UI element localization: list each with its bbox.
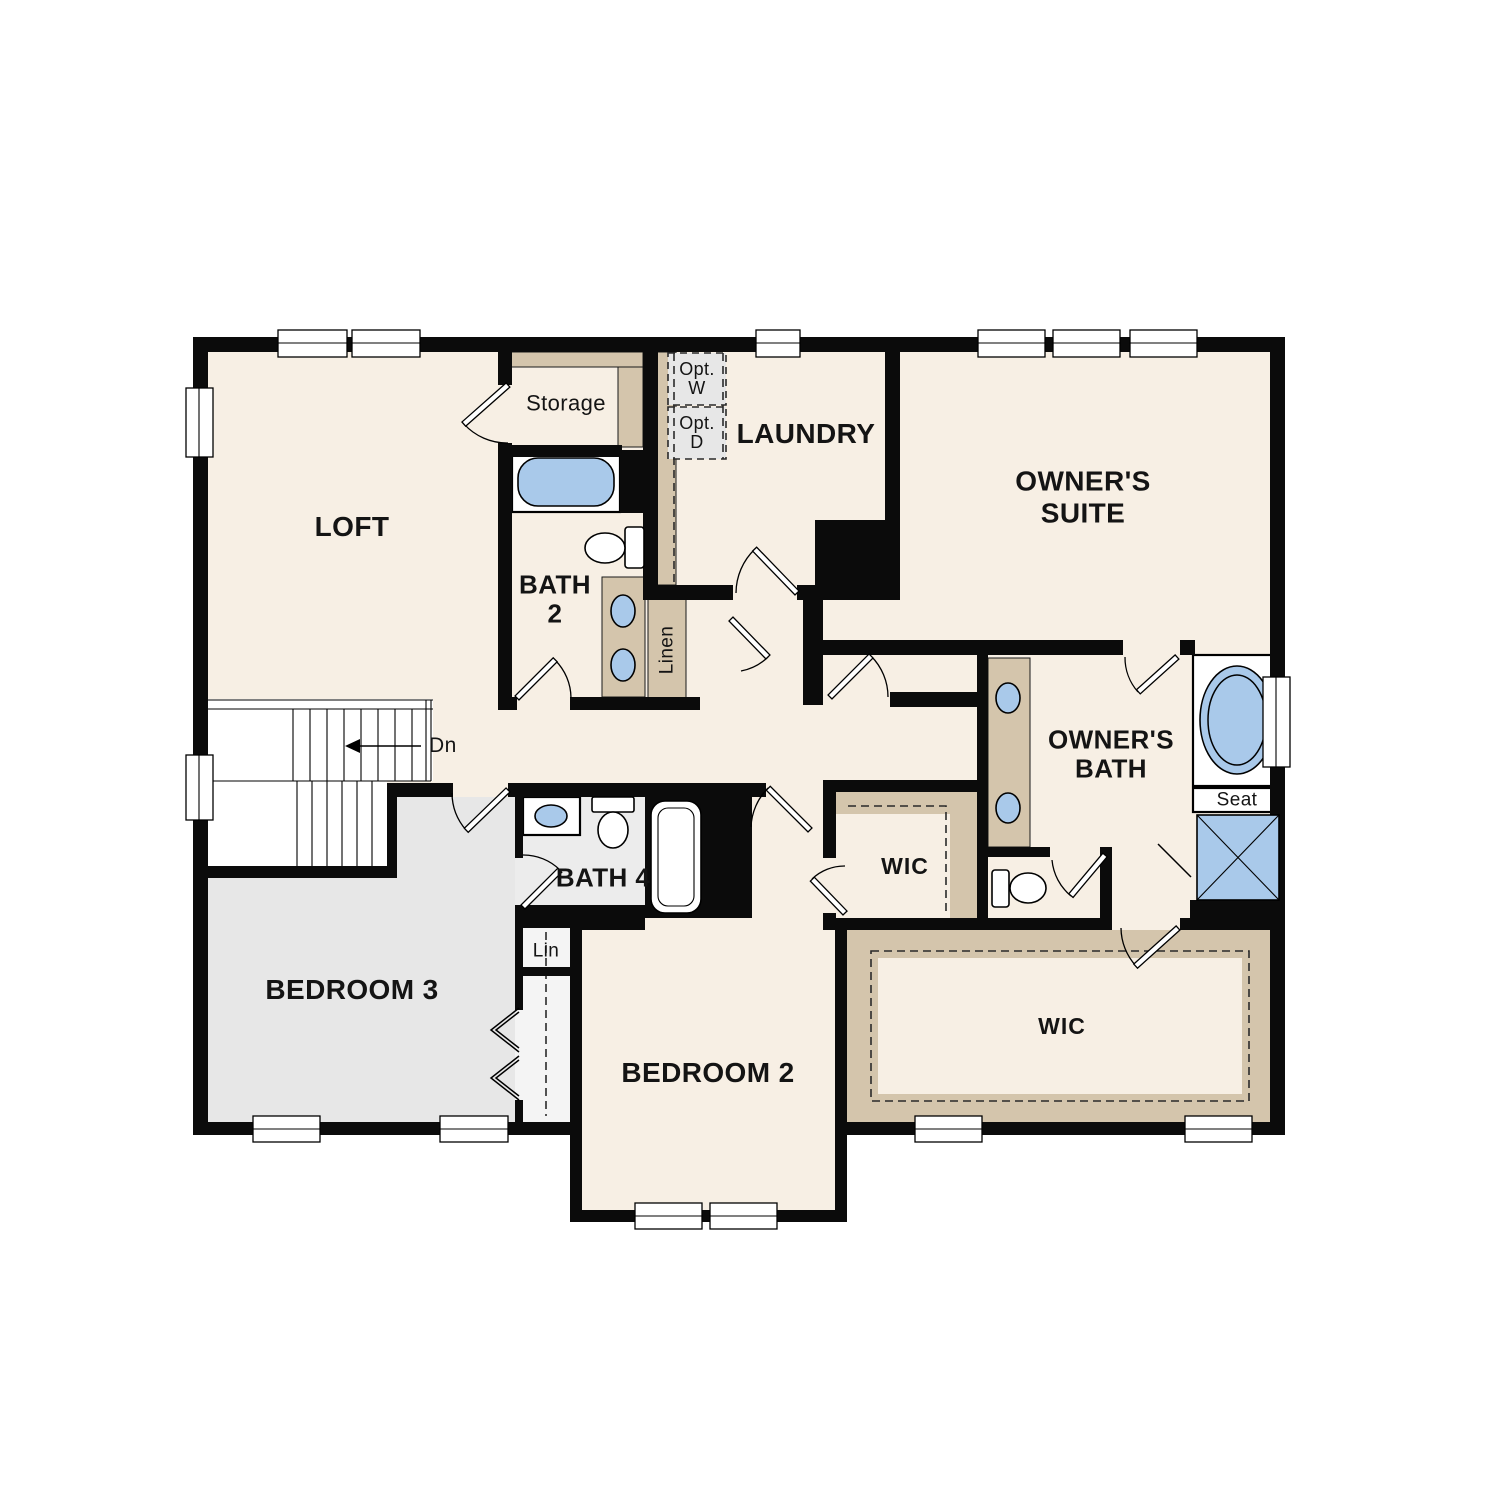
closet-label-lin: Lin (533, 940, 560, 961)
floor-plan: LOFT Storage LAUNDRY OWNER'S SUITE BATH … (0, 0, 1500, 1500)
room-label-bedroom-2: BEDROOM 2 (621, 1057, 794, 1089)
sink (996, 793, 1020, 823)
floor-plan-drawing (0, 0, 1500, 1500)
sink (996, 683, 1020, 713)
bathtub (518, 458, 614, 506)
room-label-wic-large: WIC (1038, 1013, 1086, 1039)
wic-small-shelf (836, 792, 977, 814)
room-label-owners-suite: OWNER'S SUITE (1015, 465, 1150, 528)
sink (611, 649, 635, 681)
storage-shelf (508, 352, 643, 367)
toilet-bowl (585, 533, 625, 563)
room-label-bath-2: BATH 2 (519, 571, 591, 630)
room-label-storage: Storage (526, 392, 606, 417)
annotation-seat: Seat (1217, 789, 1258, 810)
toilet-bowl (598, 812, 628, 848)
sink (611, 595, 635, 627)
storage-shelf-side (618, 367, 643, 447)
toilet-bowl (1010, 873, 1046, 903)
room-label-bedroom-3: BEDROOM 3 (265, 974, 438, 1006)
closet-label-linen: Linen (656, 626, 677, 675)
sink (535, 805, 567, 827)
annotation-stairs-down: Dn (429, 734, 457, 758)
toilet-tank (625, 527, 644, 568)
room-label-laundry: LAUNDRY (737, 418, 876, 450)
room-label-owners-bath: OWNER'S BATH (1048, 726, 1174, 785)
room-label-bath-4: BATH 4 (556, 863, 650, 892)
room-label-wic-small: WIC (881, 853, 929, 879)
toilet-tank (992, 870, 1009, 907)
annotation-opt-dryer: Opt. D (679, 414, 715, 452)
annotation-opt-washer: Opt. W (679, 360, 715, 398)
room-label-loft: LOFT (315, 511, 390, 543)
toilet-tank (592, 797, 634, 812)
wic-small-shelf (950, 814, 977, 918)
